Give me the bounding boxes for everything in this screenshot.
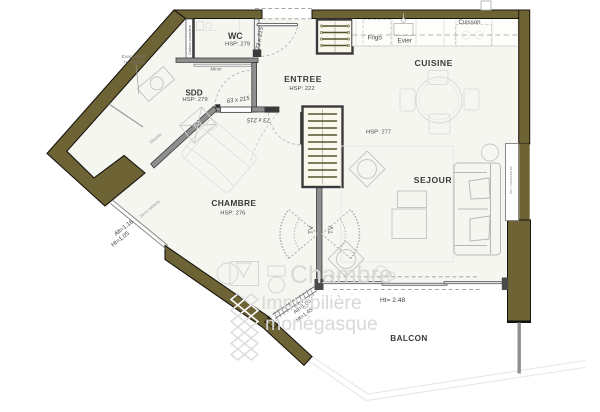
svg-text:HSP: 277: HSP: 277: [366, 130, 391, 136]
svg-text:SEJOUR: SEJOUR: [414, 175, 453, 185]
svg-text:CHAMBRE: CHAMBRE: [211, 198, 256, 208]
svg-text:WC: WC: [228, 31, 243, 41]
svg-text:Ht= 2.48: Ht= 2.48: [380, 297, 405, 304]
svg-text:CUISINE: CUISINE: [415, 58, 453, 68]
svg-text:H. +20 cm: H. +20 cm: [124, 60, 146, 66]
svg-text:73 x 215: 73 x 215: [246, 116, 270, 122]
svg-text:TV: TV: [328, 225, 335, 234]
svg-text:SDD: SDD: [185, 89, 202, 98]
svg-text:ENTREE: ENTREE: [284, 74, 322, 84]
svg-text:Miroir: Miroir: [211, 67, 223, 72]
svg-text:HSP: 276: HSP: 276: [220, 211, 246, 217]
svg-text:HSP: 279: HSP: 279: [225, 42, 250, 48]
svg-text:Frigo: Frigo: [368, 35, 383, 42]
svg-text:Chambre: Chambre: [290, 261, 393, 289]
svg-text:Immobilière: Immobilière: [261, 292, 362, 314]
svg-text:fen. coulissante: fen. coulissante: [508, 165, 513, 194]
svg-text:Cuisson: Cuisson: [459, 19, 481, 26]
svg-text:HSP: 279: HSP: 279: [182, 97, 207, 103]
svg-text:Caisson extracteur: Caisson extracteur: [188, 24, 192, 55]
svg-text:Evier: Evier: [398, 38, 412, 45]
svg-text:Evacuation: Evacuation: [122, 54, 146, 60]
svg-text:monégasque: monégasque: [265, 313, 378, 335]
svg-text:TV: TV: [308, 225, 315, 234]
svg-text:BALCON: BALCON: [390, 334, 427, 343]
svg-text:HSP: 222: HSP: 222: [289, 86, 314, 92]
